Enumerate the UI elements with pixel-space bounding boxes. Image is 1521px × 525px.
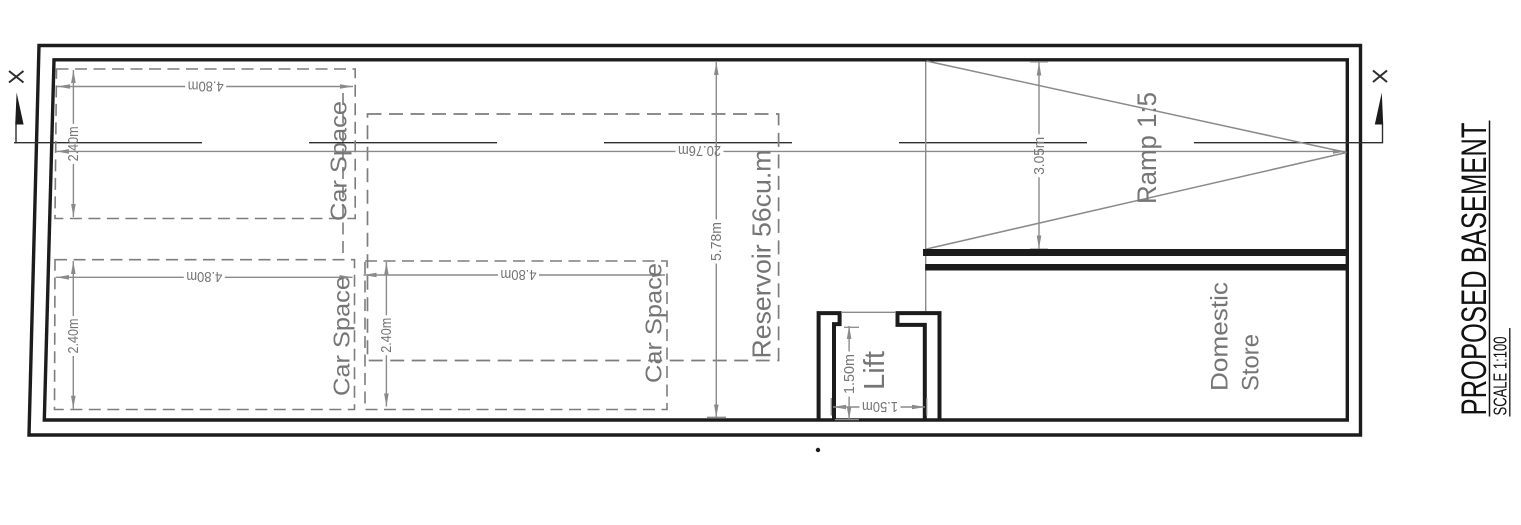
svg-text:4.80m: 4.80m [186, 268, 222, 285]
svg-text:Car Space: Car Space [329, 276, 355, 396]
svg-text:2.40m: 2.40m [378, 318, 395, 353]
svg-text:Ramp 1:5: Ramp 1:5 [1132, 92, 1162, 204]
svg-text:3.05m: 3.05m [1031, 137, 1048, 175]
svg-text:Lift: Lift [859, 351, 891, 390]
svg-text:Car Space: Car Space [326, 101, 352, 221]
svg-text:20.76m: 20.76m [678, 142, 721, 159]
svg-text:2.40m: 2.40m [65, 319, 82, 354]
svg-text:2.40m: 2.40m [65, 126, 82, 161]
svg-text:Reservoir 56cu.m: Reservoir 56cu.m [747, 150, 777, 359]
svg-text:Store: Store [1238, 334, 1265, 391]
svg-text:4.80m: 4.80m [501, 266, 537, 283]
svg-text:Domestic: Domestic [1207, 282, 1234, 391]
svg-text:5.78m: 5.78m [708, 222, 725, 261]
svg-text:PROPOSED BASEMENT: PROPOSED BASEMENT [1455, 123, 1494, 416]
svg-text:4.80m: 4.80m [188, 77, 224, 94]
svg-text:1.50m: 1.50m [841, 354, 858, 394]
svg-text:Car Space: Car Space [641, 263, 667, 383]
svg-text:SCALE 1:100: SCALE 1:100 [1491, 337, 1511, 416]
svg-text:1.50m: 1.50m [862, 398, 898, 415]
